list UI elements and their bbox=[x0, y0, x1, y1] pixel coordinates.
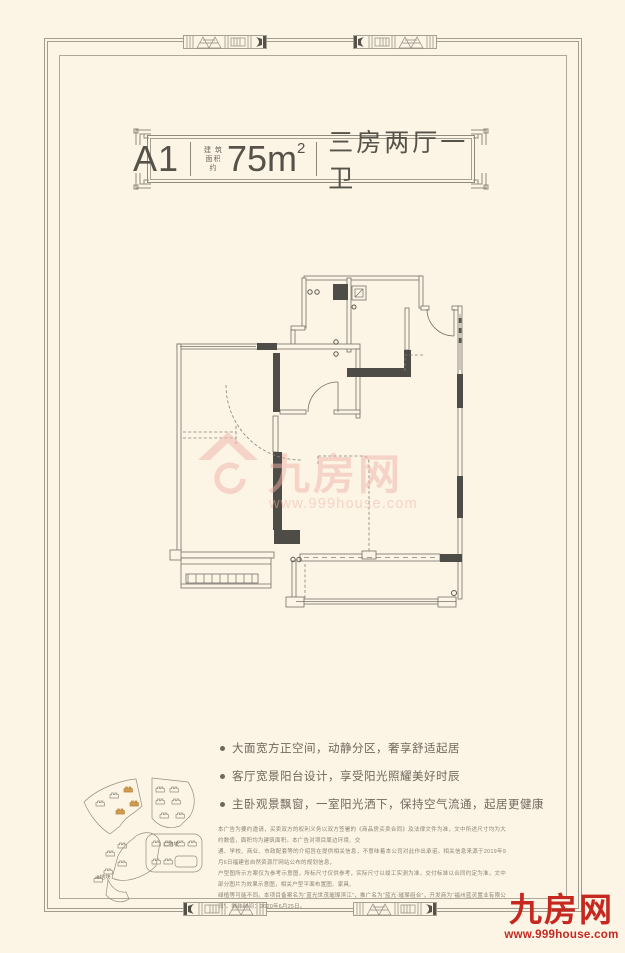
parcel-c-label: C地块 bbox=[164, 840, 179, 848]
title-box: A1 建 筑 面积约 75m2 三房两厅一卫 bbox=[133, 128, 489, 190]
disclaimer-line: 通、学校、商业、市政配套等的介绍旨在提供相关信息，不意味着本公司对此作出承诺。相… bbox=[218, 847, 506, 869]
area-exponent: 2 bbox=[297, 140, 305, 157]
frame-ornament-icon bbox=[353, 35, 437, 49]
site-map-diagram: A地块 C地块 bbox=[72, 772, 217, 917]
area-value: 75m2 bbox=[227, 138, 305, 180]
bullet-icon bbox=[220, 802, 225, 807]
watermark-site: www.999house.com bbox=[268, 496, 418, 512]
bullet-icon bbox=[220, 746, 225, 751]
disclaimer-text: 本广告为要约邀请，买卖双方的权利义务以双方签署的《商品房买卖合同》及法律文件为准… bbox=[218, 825, 506, 913]
highlight-item: 大面宽方正空间，动静分区，奢享舒适起居 bbox=[220, 740, 500, 756]
watermark-brand: 九房网 bbox=[268, 451, 403, 498]
frame-ornament-icon bbox=[183, 35, 267, 49]
watermark-house-icon bbox=[198, 432, 258, 491]
floor-plan-diagram: 九房网 www.999house.com bbox=[168, 262, 484, 652]
highlights-list: 大面宽方正空间，动静分区，奢享舒适起居 客厅宽景阳台设计，享受阳光照耀美好时辰 … bbox=[220, 740, 500, 824]
disclaimer-line: 本广告为要约邀请，买卖双方的权利义务以双方签署的《商品房买卖合同》及法律文件为准… bbox=[218, 825, 506, 847]
bullet-icon bbox=[220, 774, 225, 779]
title-divider bbox=[190, 142, 191, 176]
watermark: 九房网 www.999house.com bbox=[198, 432, 418, 512]
brand-logo-name: 九房网 bbox=[498, 892, 625, 928]
disclaimer-line: 绿植等可能不同。本项目备案名为“蓝光世茂璀璨滨江”，推广名为“蓝光·璀璨组合”，… bbox=[218, 891, 506, 913]
highlight-item: 客厅宽景阳台设计，享受阳光照耀美好时辰 bbox=[220, 768, 500, 784]
disclaimer-line: 户型图所示方案仅为参考示意图，所标尺寸仅供参考，实际尺寸以竣工实测为准，交付标准… bbox=[218, 869, 506, 891]
highlight-item: 主卧观景飘窗，一室阳光洒下，保持空气流通，起居更健康 bbox=[220, 796, 500, 812]
area-label: 建 筑 面积约 bbox=[202, 146, 225, 173]
unit-name: A1 bbox=[133, 138, 179, 180]
brand-logo: 九房网 www.999house.com bbox=[498, 892, 625, 942]
brand-logo-site: www.999house.com bbox=[498, 928, 625, 942]
layout-label: 三房两厅一卫 bbox=[328, 123, 489, 195]
title-divider bbox=[316, 142, 317, 176]
parcel-a-label: A地块 bbox=[96, 873, 111, 881]
